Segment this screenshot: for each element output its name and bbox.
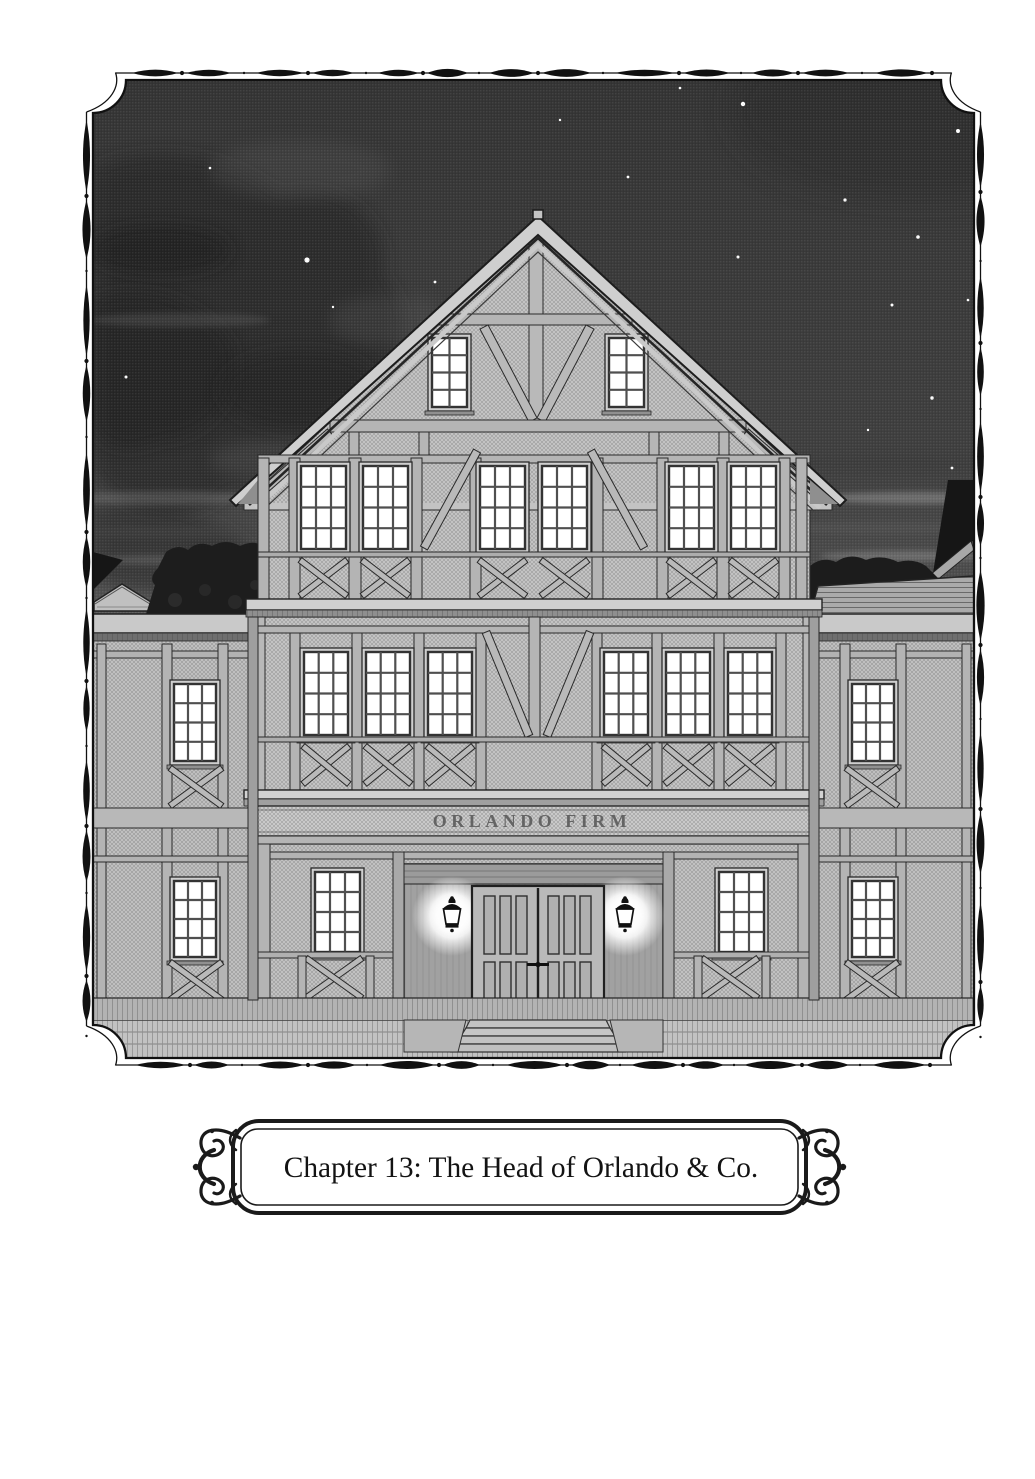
svg-text:Chapter 13: The Head of Orland: Chapter 13: The Head of Orlando & Co. bbox=[284, 1152, 759, 1184]
svg-text:ORLANDO FIRM: ORLANDO FIRM bbox=[433, 811, 632, 831]
